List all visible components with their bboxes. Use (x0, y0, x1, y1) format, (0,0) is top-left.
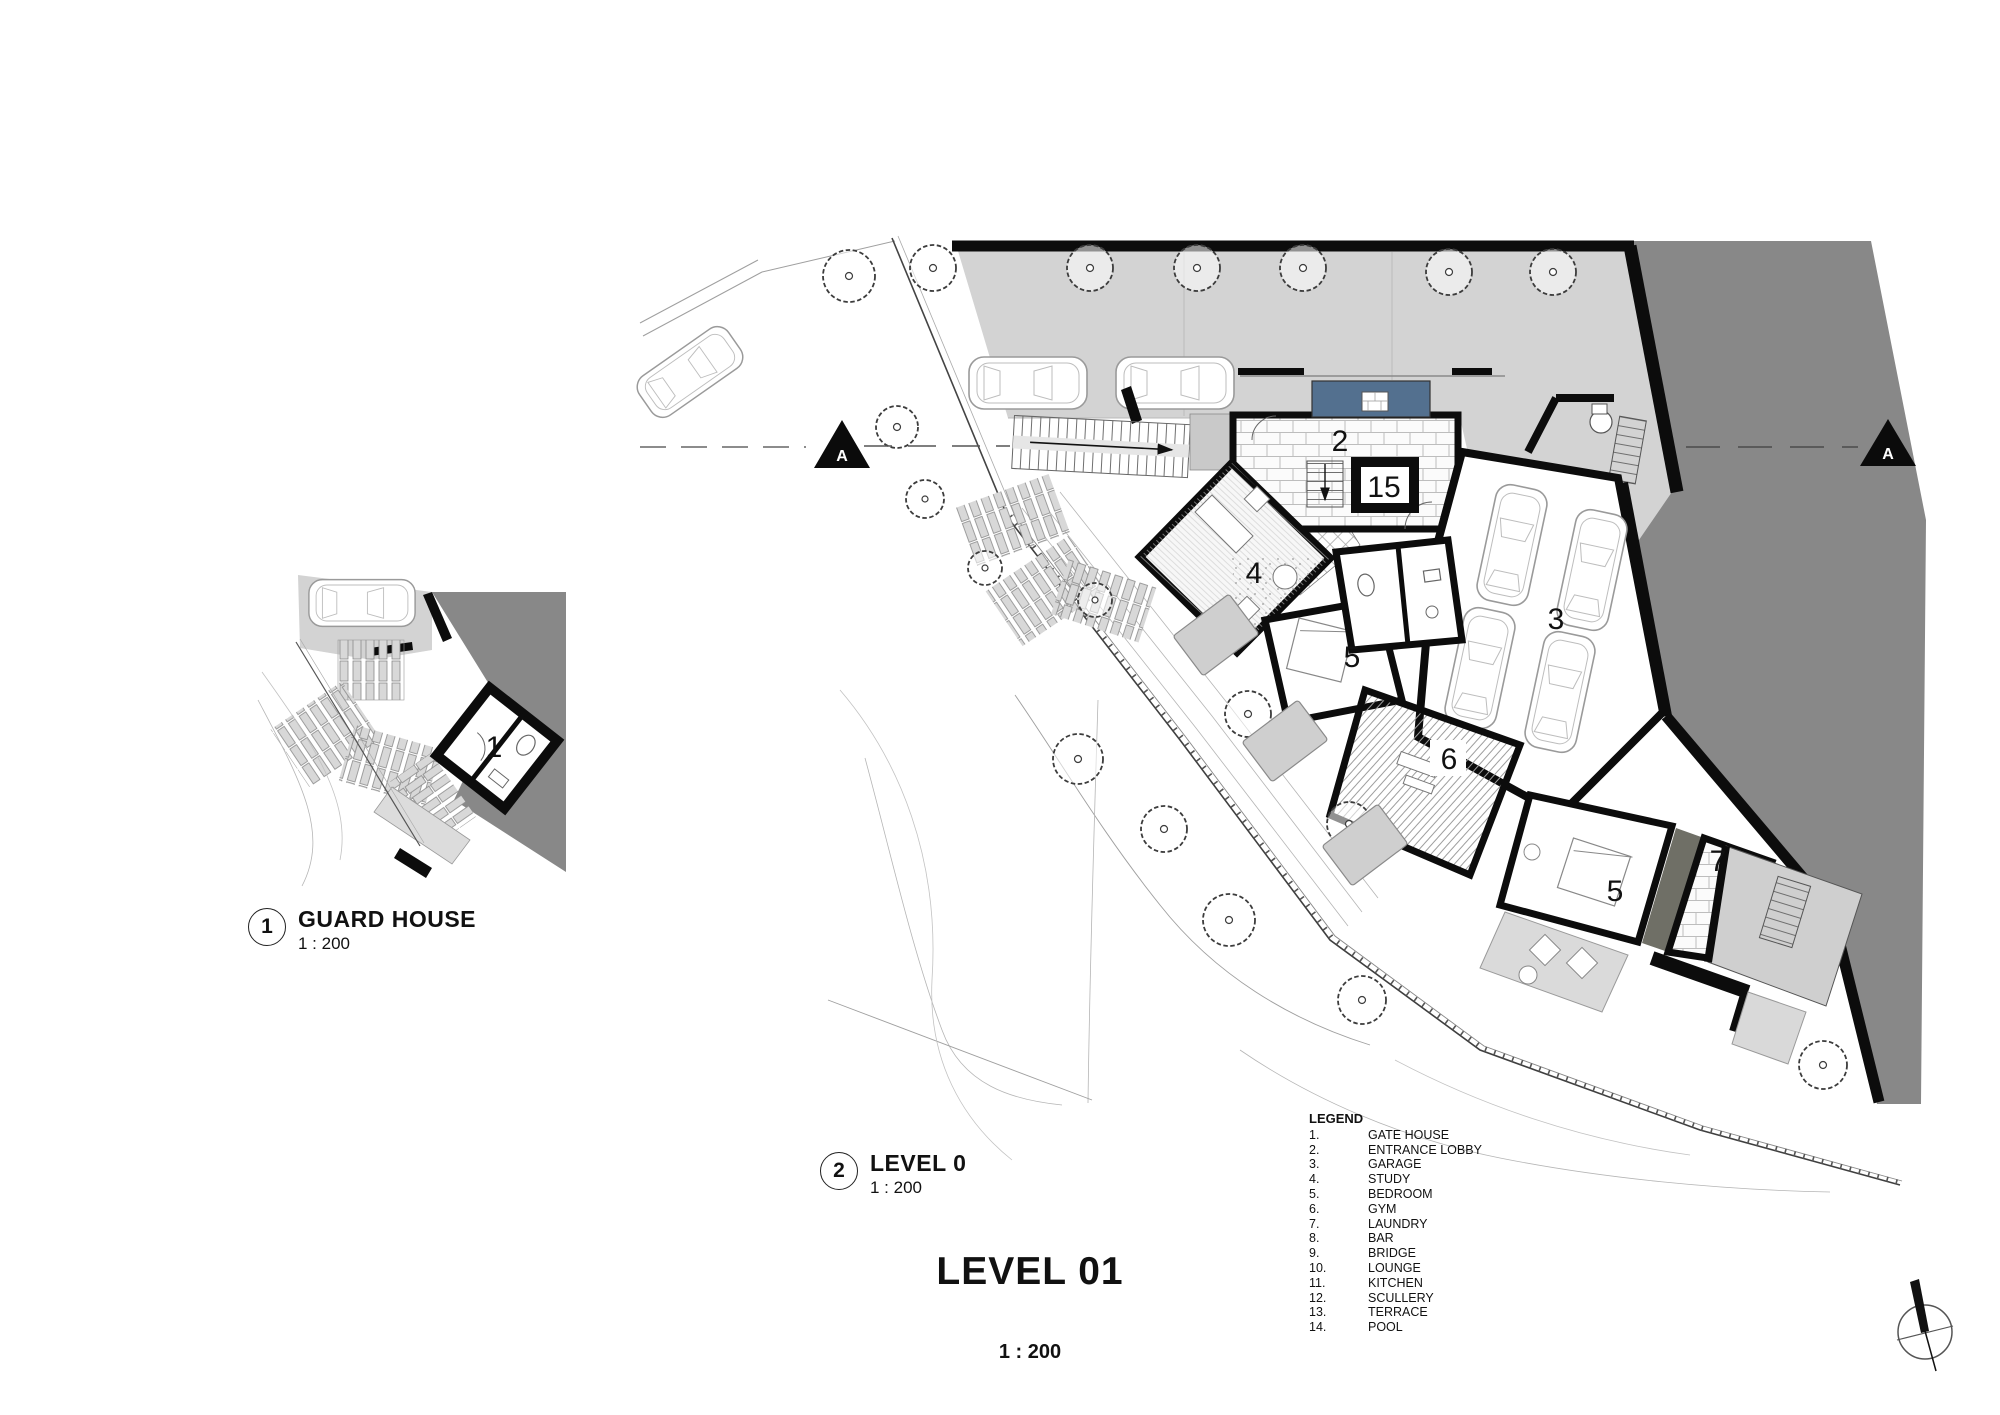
legend-item: 3.GARAGE (1309, 1157, 1482, 1172)
section-label-right: A (1882, 446, 1894, 463)
legend-item: 9.BRIDGE (1309, 1246, 1482, 1261)
legend-item-num: 3. (1309, 1157, 1368, 1172)
drawing-sheet: A A 2 15 3 4 5 6 7 5 1 1 GUA (0, 0, 2000, 1415)
view-number-badge: 2 (820, 1152, 858, 1190)
legend-item-name: GYM (1368, 1202, 1396, 1217)
guard-house-plan: 1 (258, 575, 566, 886)
legend-item: 13.TERRACE (1309, 1305, 1482, 1320)
sheet-title: LEVEL 01 (880, 1250, 1180, 1294)
label-gym: 6 (1441, 743, 1458, 776)
legend-item-num: 14. (1309, 1320, 1368, 1335)
view-title: LEVEL 0 (870, 1152, 966, 1175)
legend-item-name: ENTRANCE LOBBY (1368, 1143, 1482, 1158)
legend-item-num: 4. (1309, 1172, 1368, 1187)
legend-item-name: BRIDGE (1368, 1246, 1416, 1261)
label-laundry: 7 (1710, 845, 1727, 878)
legend-item: 14.POOL (1309, 1320, 1482, 1335)
legend-item: 1.GATE HOUSE (1309, 1128, 1482, 1143)
legend-item: 8.BAR (1309, 1231, 1482, 1246)
legend-item-num: 1. (1309, 1128, 1368, 1143)
north-arrow-icon (1897, 1279, 1953, 1371)
legend-item: 4.STUDY (1309, 1172, 1482, 1187)
label-bedroom: 5 (1344, 641, 1361, 674)
legend-item: 5.BEDROOM (1309, 1187, 1482, 1202)
label-bedroom-2: 5 (1607, 875, 1624, 908)
legend-item-name: GARAGE (1368, 1157, 1422, 1172)
legend-item-num: 6. (1309, 1202, 1368, 1217)
plan-canvas: A A 2 15 3 4 5 6 7 5 1 (0, 0, 2000, 1415)
view-number-badge: 1 (248, 908, 286, 946)
legend-item-num: 11. (1309, 1276, 1368, 1291)
legend-item: 10.LOUNGE (1309, 1261, 1482, 1276)
legend-item-num: 8. (1309, 1231, 1368, 1246)
section-label-left: A (836, 448, 848, 465)
legend-item-name: BEDROOM (1368, 1187, 1433, 1202)
level0-plan: A A 2 15 3 4 5 6 7 5 (632, 236, 1926, 1192)
legend-item-name: GATE HOUSE (1368, 1128, 1449, 1143)
legend-item-name: KITCHEN (1368, 1276, 1423, 1291)
legend-item-num: 12. (1309, 1291, 1368, 1306)
legend-item-name: STUDY (1368, 1172, 1410, 1187)
view-label-guard-house: 1 GUARD HOUSE 1 : 200 (248, 908, 476, 954)
legend-item-num: 9. (1309, 1246, 1368, 1261)
legend-item-num: 7. (1309, 1217, 1368, 1232)
legend-item-num: 5. (1309, 1187, 1368, 1202)
sheet-scale: 1 : 200 (880, 1341, 1180, 1364)
legend-item-name: LOUNGE (1368, 1261, 1421, 1276)
legend-heading: LEGEND (1309, 1112, 1482, 1127)
legend-item: 7.LAUNDRY (1309, 1217, 1482, 1232)
legend-item-num: 2. (1309, 1143, 1368, 1158)
legend-item-name: SCULLERY (1368, 1291, 1434, 1306)
legend-item-name: POOL (1368, 1320, 1403, 1335)
view-scale: 1 : 200 (298, 934, 476, 954)
label-study: 4 (1246, 557, 1263, 590)
legend-item-name: BAR (1368, 1231, 1394, 1246)
label-entrance-lobby: 2 (1332, 425, 1349, 458)
label-stair-core: 15 (1367, 471, 1400, 504)
legend-item-name: TERRACE (1368, 1305, 1428, 1320)
legend-item-name: LAUNDRY (1368, 1217, 1428, 1232)
label-gate-house: 1 (486, 731, 503, 764)
legend-item: 11.KITCHEN (1309, 1276, 1482, 1291)
view-label-level-0: 2 LEVEL 0 1 : 200 (820, 1152, 966, 1198)
legend-item-num: 10. (1309, 1261, 1368, 1276)
legend-item: 6.GYM (1309, 1202, 1482, 1217)
legend-item-num: 13. (1309, 1305, 1368, 1320)
legend-item: 2.ENTRANCE LOBBY (1309, 1143, 1482, 1158)
sheet-title-block: LEVEL 01 1 : 200 (880, 1250, 1180, 1364)
label-garage: 3 (1548, 603, 1565, 636)
view-scale: 1 : 200 (870, 1178, 966, 1198)
room-bathroom (1336, 540, 1462, 650)
legend: LEGEND 1.GATE HOUSE 2.ENTRANCE LOBBY 3.G… (1309, 1112, 1482, 1335)
legend-item: 12.SCULLERY (1309, 1291, 1482, 1306)
view-title: GUARD HOUSE (298, 908, 476, 931)
